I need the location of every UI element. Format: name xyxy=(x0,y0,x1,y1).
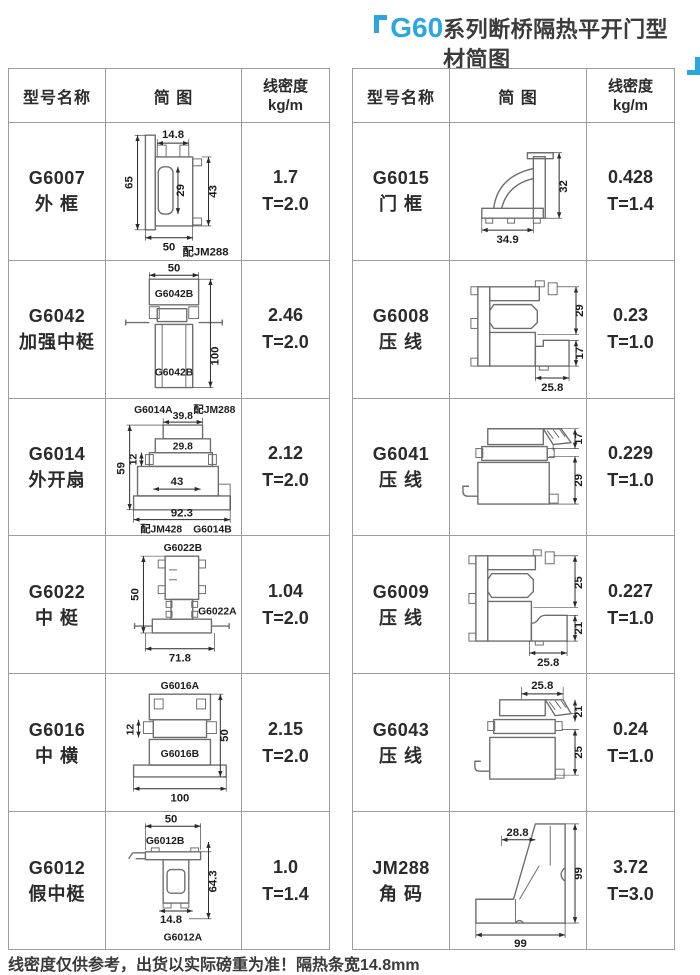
model-code: G6043 xyxy=(373,717,430,743)
model-code: G6012 xyxy=(29,855,86,881)
density-cell: 1.04 T=2.0 xyxy=(242,536,329,673)
diagram-cell: 25 21 25.8 xyxy=(450,536,587,673)
model-code: G6016 xyxy=(29,717,86,743)
model-name: 压 线 xyxy=(379,467,423,493)
dim-label: 17 xyxy=(574,347,586,360)
corner-bracket-icon xyxy=(687,57,700,75)
model-name: 压 线 xyxy=(379,743,423,769)
dim-label: 32 xyxy=(558,180,570,193)
thickness-value: T=1.0 xyxy=(607,467,654,494)
model-name: 压 线 xyxy=(379,329,423,355)
density-cell: 0.229 T=1.0 xyxy=(587,399,674,536)
density-value: 2.46 xyxy=(268,302,303,329)
profile-diagram-g6014: G6014A 配JM288 29.8 12 59 43 xyxy=(106,399,241,536)
dim-label: 50 xyxy=(163,242,176,254)
dim-label: 12 xyxy=(126,724,137,736)
dim-label: 50 xyxy=(219,730,231,743)
density-value: 2.15 xyxy=(268,716,303,743)
part-label: G6042B xyxy=(155,289,193,300)
thickness-value: T=2.0 xyxy=(262,605,309,632)
thickness-value: T=1.0 xyxy=(607,605,654,632)
dim-label: 29 xyxy=(574,304,586,317)
model-name: 假中梃 xyxy=(29,881,86,907)
model-code: G6008 xyxy=(373,303,430,329)
dim-label: 99 xyxy=(514,938,527,949)
density-cell: 1.0 T=1.4 xyxy=(242,812,329,949)
dim-label: 39.8 xyxy=(173,411,193,422)
footer-note: 线密度仅供参考，出货以实际磅重为准！隔热条宽14.8mm xyxy=(8,951,420,975)
part-label: G6014B xyxy=(193,524,231,535)
dim-label: 25 xyxy=(573,746,585,759)
table-row: G6041 压 线 17 xyxy=(353,398,674,536)
model-code: G6042 xyxy=(29,303,86,329)
part-label: G6014A xyxy=(134,405,173,416)
thickness-value: T=2.0 xyxy=(262,467,309,494)
dim-label: 29 xyxy=(573,474,585,487)
dim-label: 50 xyxy=(130,589,142,602)
table-row: G6016 中 横 G6016A 12 G6016B 50 xyxy=(9,673,329,811)
thickness-value: T=1.4 xyxy=(262,881,309,908)
model-code: G6007 xyxy=(29,165,86,191)
model-cell: G6041 压 线 xyxy=(353,399,450,536)
thickness-value: T=2.0 xyxy=(262,191,309,218)
page-title: G60 系列断桥隔热平开门型材简图 xyxy=(374,13,700,75)
model-cell: JM288 角 码 xyxy=(353,812,450,949)
thickness-value: T=1.4 xyxy=(607,191,654,218)
density-value: 1.0 xyxy=(273,854,298,881)
table-row: G6015 门 框 32 34.9 xyxy=(353,122,674,260)
profile-diagram-g6022: G6022B 50 G6022A 71.8 xyxy=(106,536,241,673)
dim-label: 21 xyxy=(574,706,585,718)
density-value: 0.23 xyxy=(613,302,648,329)
diagram-cell: G6022B 50 G6022A 71.8 xyxy=(106,536,242,673)
density-cell: 0.24 T=1.0 xyxy=(587,674,674,811)
model-cell: G6012 假中梃 xyxy=(9,812,106,949)
dim-label: 43 xyxy=(207,185,219,198)
model-name: 中 梃 xyxy=(35,605,79,631)
density-value: 0.229 xyxy=(608,440,653,467)
model-name: 压 线 xyxy=(379,605,423,631)
header-density-line1: 线密度 xyxy=(263,77,308,96)
dim-label: 14.8 xyxy=(160,914,182,926)
diagram-cell: 28.8 99 99 xyxy=(450,812,587,949)
density-value: 3.72 xyxy=(613,854,648,881)
profile-diagram-g6015: 32 34.9 xyxy=(450,123,586,260)
model-cell: G6009 压 线 xyxy=(353,536,450,673)
model-code: G6009 xyxy=(373,579,430,605)
profile-diagram-g6042: 50 G6042B G6042B 100 xyxy=(106,261,241,398)
profile-diagram-g6007: 14.8 65 29 43 50 配JM288 xyxy=(106,123,241,260)
header-diagram: 简 图 xyxy=(450,69,587,122)
thickness-value: T=1.0 xyxy=(607,329,654,356)
dim-label: 50 xyxy=(168,262,181,274)
profile-diagram-g6009: 25 21 25.8 xyxy=(450,536,586,673)
table-row: G6014 外开扇 G6014A 配JM288 29.8 12 xyxy=(9,398,329,536)
profile-diagram-g6012: 50 G6012B 64.3 14.8 G6012A xyxy=(106,812,241,949)
model-cell: G6016 中 横 xyxy=(9,674,106,811)
diagram-cell: 50 G6012B 64.3 14.8 G6012A xyxy=(106,812,242,949)
title-highlight: G60 xyxy=(390,13,443,43)
header-diagram: 简 图 xyxy=(106,69,242,122)
model-name: 中 横 xyxy=(35,743,79,769)
table-row: G6012 假中梃 50 G6012B 64.3 xyxy=(9,811,329,949)
density-cell: 0.227 T=1.0 xyxy=(587,536,674,673)
dim-label: 100 xyxy=(170,793,189,805)
density-cell: 3.72 T=3.0 xyxy=(587,812,674,949)
dim-label: 99 xyxy=(573,867,585,880)
diagram-cell: G6016A 12 G6016B 50 100 xyxy=(106,674,242,811)
diagram-cell: 50 G6042B G6042B 100 xyxy=(106,261,242,398)
thickness-value: T=2.0 xyxy=(262,743,309,770)
model-code: G6041 xyxy=(373,441,430,467)
fitting-note: 配JM288 xyxy=(183,244,229,258)
part-label: G6012B xyxy=(146,836,184,847)
model-code: JM288 xyxy=(372,855,430,881)
density-cell: 0.428 T=1.4 xyxy=(587,123,674,260)
profile-diagram-jm288: 28.8 99 99 xyxy=(450,812,586,949)
part-label: G6012A xyxy=(164,933,203,944)
model-name: 角 码 xyxy=(379,881,423,907)
diagram-cell: 14.8 65 29 43 50 配JM288 xyxy=(106,123,242,260)
density-value: 0.24 xyxy=(613,716,648,743)
dim-label: 25.8 xyxy=(537,657,559,669)
profile-table-left: 型号名称 简 图 线密度 kg/m G6007 外 框 xyxy=(8,68,330,950)
header-model: 型号名称 xyxy=(353,69,450,122)
model-cell: G6007 外 框 xyxy=(9,123,106,260)
dim-label: 43 xyxy=(171,476,184,488)
thickness-value: T=3.0 xyxy=(607,881,654,908)
density-cell: 0.23 T=1.0 xyxy=(587,261,674,398)
table-header-row: 型号名称 简 图 线密度 kg/m xyxy=(9,69,329,122)
table-row: G6043 压 线 25.8 21 xyxy=(353,673,674,811)
model-name: 外开扇 xyxy=(29,467,86,493)
density-value: 0.428 xyxy=(608,164,653,191)
corner-bracket-icon xyxy=(374,15,387,33)
fitting-note: 配JM288 xyxy=(193,404,235,416)
diagram-cell: 17 29 xyxy=(450,399,587,536)
part-label: G6022A xyxy=(198,607,237,618)
density-cell: 2.15 T=2.0 xyxy=(242,674,329,811)
table-row: JM288 角 码 28.8 99 xyxy=(353,811,674,949)
part-label: G6042B xyxy=(155,368,193,379)
model-name: 外 框 xyxy=(35,191,79,217)
table-row: G6008 压 线 29 17 xyxy=(353,260,674,398)
header-model: 型号名称 xyxy=(9,69,106,122)
header-density: 线密度 kg/m xyxy=(587,69,674,122)
dim-label: 29 xyxy=(175,184,187,197)
diagram-cell: 25.8 21 25 xyxy=(450,674,587,811)
density-value: 1.04 xyxy=(268,578,303,605)
table-row: G6042 加强中梃 50 G6042B G6042B xyxy=(9,260,329,398)
dim-label: 21 xyxy=(573,622,585,635)
table-header-row: 型号名称 简 图 线密度 kg/m xyxy=(353,69,674,122)
thickness-value: T=1.0 xyxy=(607,743,654,770)
header-density-line2: kg/m xyxy=(268,96,303,115)
fitting-note: 配JM428 xyxy=(140,523,182,535)
profile-table-right: 型号名称 简 图 线密度 kg/m G6015 门 框 xyxy=(352,68,675,950)
model-cell: G6022 中 梃 xyxy=(9,536,106,673)
dim-label: 17 xyxy=(574,432,585,444)
diagram-cell: G6014A 配JM288 29.8 12 59 43 xyxy=(106,399,242,536)
dim-label: 71.8 xyxy=(169,653,191,665)
table-row: G6009 压 线 25 21 xyxy=(353,535,674,673)
dim-label: 14.8 xyxy=(162,129,184,141)
model-cell: G6043 压 线 xyxy=(353,674,450,811)
profile-diagram-g6043: 25.8 21 25 xyxy=(450,674,586,811)
density-cell: 2.46 T=2.0 xyxy=(242,261,329,398)
catalog-page: G60 系列断桥隔热平开门型材简图 型号名称 简 图 线密度 kg/m G600… xyxy=(0,0,700,965)
profile-diagram-g6041: 17 29 xyxy=(450,399,586,536)
dim-label: 64.3 xyxy=(207,871,219,893)
model-cell: G6014 外开扇 xyxy=(9,399,106,536)
diagram-cell: 32 34.9 xyxy=(450,123,587,260)
dim-label: 50 xyxy=(165,813,178,825)
density-cell: 2.12 T=2.0 xyxy=(242,399,329,536)
dim-label: 25.8 xyxy=(531,680,553,692)
dim-label: 25 xyxy=(573,576,585,589)
dim-label: 34.9 xyxy=(497,234,519,246)
header-density-line2: kg/m xyxy=(613,96,648,115)
dim-label: 25.8 xyxy=(541,382,563,394)
density-value: 2.12 xyxy=(268,440,303,467)
profile-diagram-g6016: G6016A 12 G6016B 50 100 xyxy=(106,674,241,811)
model-name: 门 框 xyxy=(379,191,423,217)
dim-label: 92.3 xyxy=(171,507,193,519)
dim-label: 28.8 xyxy=(506,827,528,839)
dim-label: 65 xyxy=(124,176,136,189)
dim-label: 12 xyxy=(129,453,140,465)
part-label: G6022B xyxy=(164,544,202,555)
model-code: G6015 xyxy=(373,165,430,191)
part-label: G6016A xyxy=(161,682,200,693)
model-cell: G6042 加强中梃 xyxy=(9,261,106,398)
table-row: G6007 外 框 14.8 65 xyxy=(9,122,329,260)
table-row: G6022 中 梃 G6022B 50 xyxy=(9,535,329,673)
density-value: 1.7 xyxy=(273,164,298,191)
dim-label: 100 xyxy=(209,346,221,365)
part-label: G6016B xyxy=(161,750,199,761)
dim-label: 59 xyxy=(116,462,128,475)
dim-label: 29.8 xyxy=(173,441,193,452)
header-density-line1: 线密度 xyxy=(608,77,653,96)
thickness-value: T=2.0 xyxy=(262,329,309,356)
title-text: 系列断桥隔热平开门型材简图 xyxy=(443,13,684,75)
profile-diagram-g6008: 29 17 25.8 xyxy=(450,261,586,398)
model-code: G6014 xyxy=(29,441,86,467)
density-value: 0.227 xyxy=(608,578,653,605)
model-name: 加强中梃 xyxy=(19,329,95,355)
diagram-cell: 29 17 25.8 xyxy=(450,261,587,398)
header-density: 线密度 kg/m xyxy=(242,69,329,122)
model-code: G6022 xyxy=(29,579,86,605)
model-cell: G6015 门 框 xyxy=(353,123,450,260)
density-cell: 1.7 T=2.0 xyxy=(242,123,329,260)
model-cell: G6008 压 线 xyxy=(353,261,450,398)
